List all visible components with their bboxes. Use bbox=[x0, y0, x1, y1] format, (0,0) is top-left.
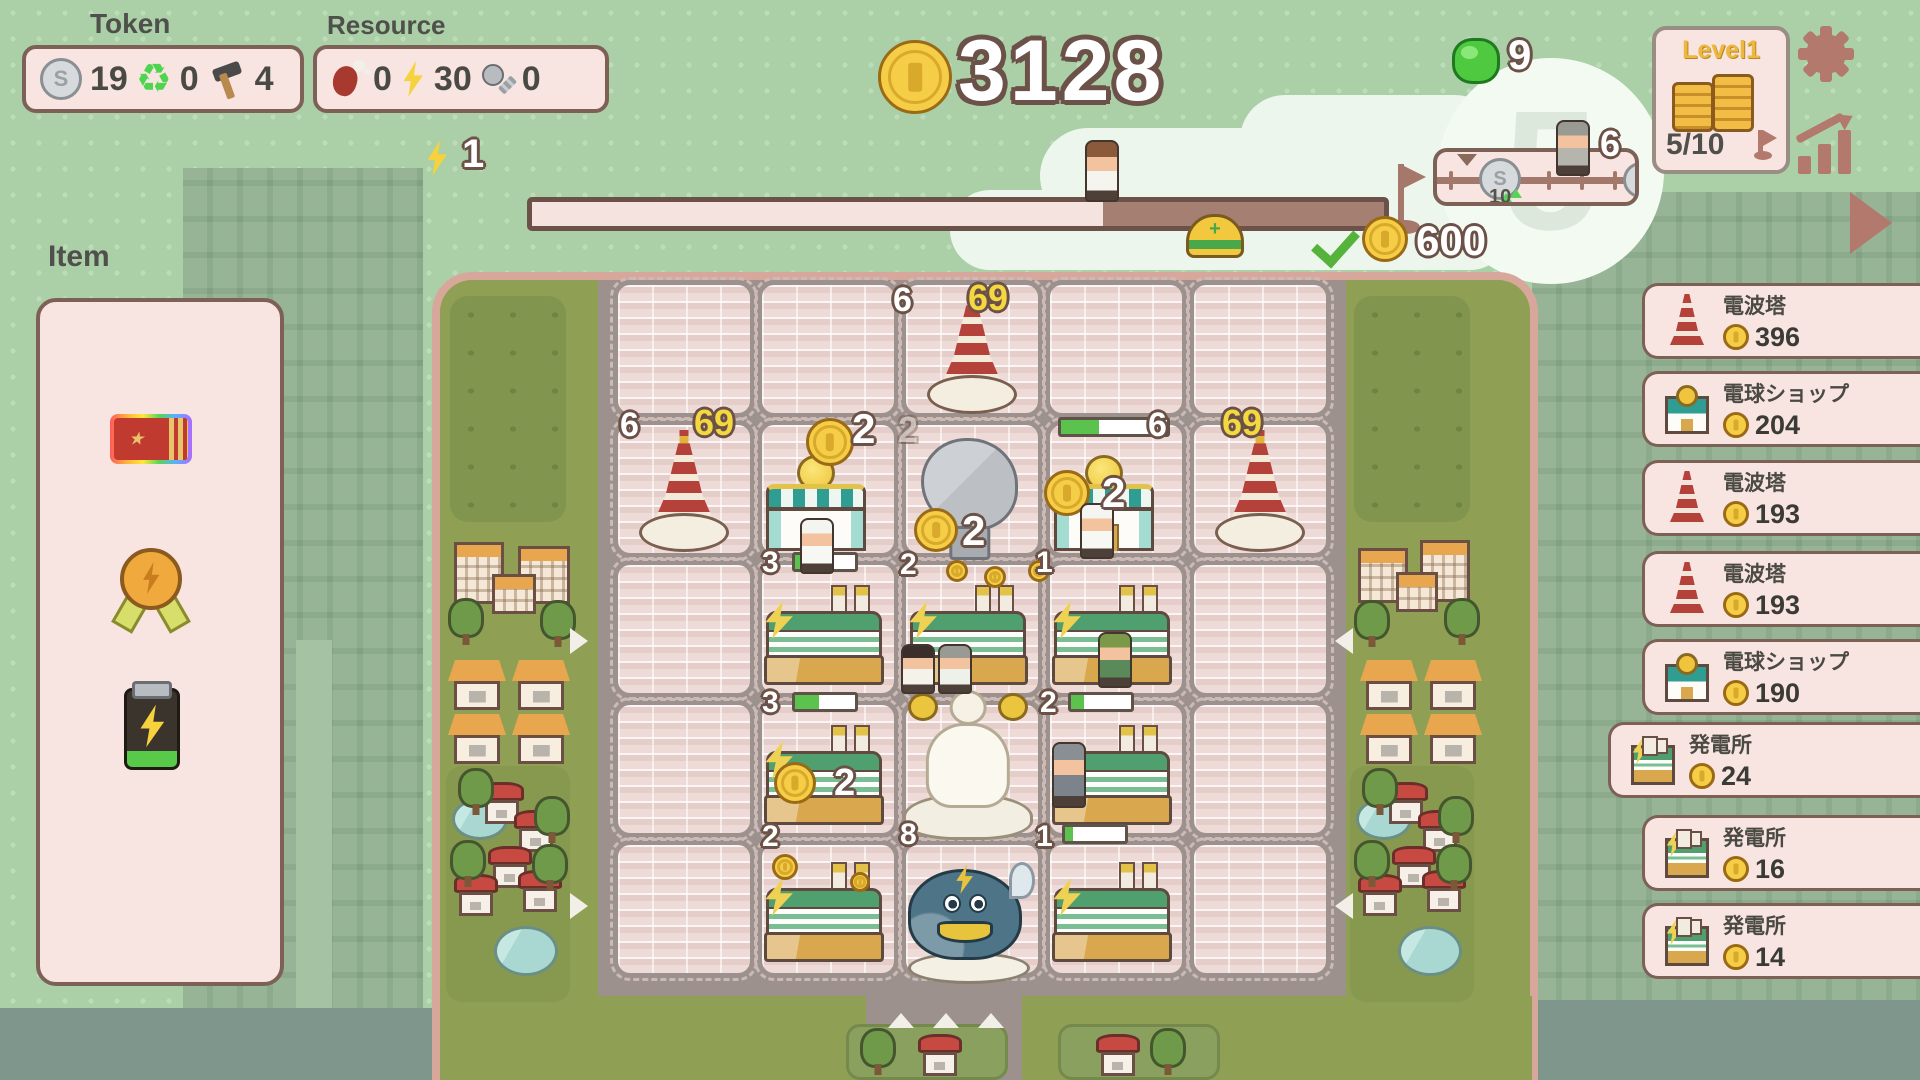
energy-battery-item[interactable] bbox=[124, 688, 180, 770]
flag-icon bbox=[1754, 130, 1780, 160]
shop-icon bbox=[1663, 382, 1711, 436]
meat-icon bbox=[331, 58, 365, 100]
sidebar-item-発電所-5[interactable]: 発電所24 bbox=[1608, 722, 1920, 798]
token-coin-value: 19 bbox=[90, 60, 128, 99]
street-band-right bbox=[1528, 1000, 1920, 1080]
board-arrow-left bbox=[1322, 893, 1353, 919]
board-arrow-right bbox=[570, 628, 601, 654]
house-o-decor bbox=[448, 660, 506, 710]
token-label: Token bbox=[90, 8, 170, 40]
tower-icon bbox=[1663, 471, 1711, 525]
energy-float-value: 1 bbox=[462, 134, 484, 174]
screw-icon bbox=[480, 62, 514, 96]
street-band-left bbox=[0, 1008, 445, 1080]
statue-building[interactable] bbox=[900, 682, 1036, 840]
reward-coin-icon bbox=[1362, 216, 1408, 262]
board-coin[interactable] bbox=[774, 762, 816, 804]
gem-count: 9 bbox=[1508, 34, 1531, 76]
resource-screw-value: 0 bbox=[522, 60, 541, 99]
pond-decor bbox=[1398, 926, 1462, 976]
building-name: 発電所 bbox=[1723, 910, 1786, 940]
board-cell[interactable] bbox=[618, 845, 750, 973]
whale-building[interactable] bbox=[903, 862, 1035, 984]
board-number-label: 3 bbox=[762, 688, 779, 718]
resource-energy-value: 30 bbox=[434, 60, 472, 99]
coin-total-icon bbox=[878, 40, 952, 114]
building-earning-value: 16 bbox=[1755, 854, 1785, 885]
board-cell[interactable] bbox=[618, 285, 750, 413]
board-number-label: 2 bbox=[762, 822, 779, 852]
pond-decor bbox=[494, 926, 558, 976]
plant-icon bbox=[1663, 914, 1711, 968]
building-earning: 24 bbox=[1689, 761, 1752, 792]
whale-part bbox=[943, 894, 961, 914]
tower-part bbox=[1215, 513, 1305, 552]
bldg-decor bbox=[1396, 572, 1438, 612]
board-arrow-right bbox=[570, 893, 601, 919]
plant-icon-shape bbox=[1665, 838, 1709, 878]
sidebar-item-text: 発電所24 bbox=[1689, 729, 1752, 792]
gold-coin-icon bbox=[1723, 324, 1749, 350]
board-number-label: 2 bbox=[962, 510, 985, 552]
building-earning: 396 bbox=[1723, 322, 1800, 353]
energy-medal-item[interactable] bbox=[112, 548, 190, 634]
building-earning: 14 bbox=[1723, 942, 1786, 973]
building-name: 電球ショップ bbox=[1723, 646, 1849, 676]
building-name: 発電所 bbox=[1723, 822, 1786, 852]
building-name: 電波塔 bbox=[1723, 558, 1800, 588]
building-earning: 16 bbox=[1723, 854, 1786, 885]
gold-coin-icon bbox=[1723, 680, 1749, 706]
board-arrow-up bbox=[933, 1000, 959, 1028]
villager-green-hat-sprite bbox=[1098, 632, 1132, 688]
tower-building[interactable] bbox=[639, 430, 729, 552]
board-coin[interactable] bbox=[946, 560, 968, 582]
villager-sprite bbox=[938, 644, 972, 694]
token-panel: S 19 ♻ 0 4 bbox=[22, 45, 304, 113]
board-number-label: 2 bbox=[834, 764, 855, 802]
board-number-label: 2 bbox=[1102, 472, 1125, 514]
board-number-label: 2 bbox=[898, 412, 918, 448]
tree-decor bbox=[458, 768, 494, 808]
build-progress-fill bbox=[1065, 827, 1073, 841]
tree-decor bbox=[534, 796, 570, 836]
city-silhouette-left-strip bbox=[296, 640, 332, 1010]
build-progress-bar bbox=[1062, 824, 1128, 844]
level-panel[interactable]: Level1 5/10 bbox=[1652, 26, 1790, 174]
park-decor bbox=[1354, 296, 1470, 522]
house-o-decor bbox=[1424, 714, 1482, 764]
house-o-decor bbox=[512, 660, 570, 710]
building-earning-value: 396 bbox=[1755, 322, 1800, 353]
tower-icon-shape bbox=[1667, 562, 1707, 616]
plant-part bbox=[1052, 932, 1173, 962]
building-name: 電波塔 bbox=[1723, 467, 1800, 497]
building-name: 発電所 bbox=[1689, 729, 1752, 759]
gold-coin-icon bbox=[1689, 763, 1715, 789]
board-number-label: 2 bbox=[852, 408, 875, 450]
bldg-decor bbox=[492, 574, 536, 614]
energy-float-icon bbox=[424, 140, 450, 176]
house-o-decor bbox=[1360, 714, 1418, 764]
tree-decor bbox=[1150, 1028, 1186, 1068]
settings-gear-icon[interactable] bbox=[1806, 34, 1846, 74]
build-progress-fill bbox=[1071, 695, 1084, 709]
shop-icon bbox=[1663, 650, 1711, 704]
tower-building[interactable] bbox=[1215, 430, 1305, 552]
board-number-label: 2 bbox=[900, 550, 917, 580]
track-line bbox=[1437, 177, 1635, 184]
rainbow-ticket-item[interactable] bbox=[110, 414, 192, 464]
board-number-label: 8 bbox=[900, 820, 917, 850]
villager-sprite bbox=[901, 644, 935, 694]
building-name: 電球ショップ bbox=[1723, 378, 1849, 408]
building-earning-value: 190 bbox=[1755, 678, 1800, 709]
board-coin[interactable] bbox=[850, 872, 870, 892]
plant-building[interactable] bbox=[1054, 862, 1170, 962]
board-number-label: 6 bbox=[893, 283, 912, 317]
build-progress-bar bbox=[792, 692, 858, 712]
board-cell[interactable] bbox=[1194, 285, 1326, 413]
gold-coin-icon bbox=[1723, 856, 1749, 882]
plant-part bbox=[764, 655, 885, 685]
board-number-label: 3 bbox=[762, 548, 779, 578]
house-r-decor bbox=[1358, 874, 1402, 916]
sidebar-item-text: 電波塔396 bbox=[1723, 290, 1800, 353]
build-progress-fill bbox=[795, 695, 819, 709]
quest-runner-sprite bbox=[1085, 140, 1119, 202]
whale-part bbox=[937, 921, 992, 943]
sidebar-item-text: 電波塔193 bbox=[1723, 467, 1800, 530]
plant-icon bbox=[1629, 733, 1677, 787]
tree-decor bbox=[1438, 796, 1474, 836]
track-next-coin: S bbox=[1623, 162, 1639, 198]
coin-total-value: 3128 bbox=[958, 28, 1165, 114]
building-earning-value: 193 bbox=[1755, 590, 1800, 621]
track-marker-value: 10 bbox=[1489, 186, 1511, 206]
token-hammer-value: 4 bbox=[255, 60, 274, 99]
sidebar-item-text: 発電所14 bbox=[1723, 910, 1786, 973]
shop-icon-shape bbox=[1665, 396, 1709, 434]
statue-part bbox=[950, 690, 987, 725]
board-number-label: 6 bbox=[1148, 408, 1167, 442]
walker-count: 6 bbox=[1600, 126, 1620, 162]
quest-progress-bar bbox=[527, 197, 1389, 231]
board-arrow-up bbox=[888, 1000, 914, 1028]
tower-icon-shape bbox=[1667, 294, 1707, 348]
board-cell[interactable] bbox=[762, 285, 894, 413]
building-earning-value: 14 bbox=[1755, 942, 1785, 973]
building-earning-value: 24 bbox=[1721, 761, 1751, 792]
item-panel bbox=[36, 298, 284, 986]
board-number-label: 69 bbox=[1222, 405, 1262, 441]
energy-icon bbox=[400, 61, 426, 97]
sidebar-item-電球ショップ-4[interactable]: 電球ショップ190 bbox=[1642, 639, 1920, 715]
board-number-label: 2 bbox=[1040, 688, 1057, 718]
tree-decor bbox=[1436, 844, 1472, 884]
quest-progress-fill bbox=[532, 202, 1103, 226]
level-progress: 5/10 bbox=[1666, 128, 1724, 162]
tower-icon bbox=[1663, 562, 1711, 616]
board-arrow-left bbox=[1322, 628, 1353, 654]
board-number-label: 1 bbox=[1036, 548, 1053, 578]
house-o-decor bbox=[448, 714, 506, 764]
chef-sprite bbox=[800, 518, 834, 574]
building-earning-value: 204 bbox=[1755, 410, 1800, 441]
whale-part bbox=[1009, 862, 1035, 899]
sidebar-item-text: 電波塔193 bbox=[1723, 558, 1800, 621]
hammer-icon bbox=[207, 59, 247, 99]
board-coin[interactable] bbox=[772, 854, 798, 880]
plant-part bbox=[766, 632, 882, 657]
board-cell[interactable] bbox=[1050, 285, 1182, 413]
tree-decor bbox=[1354, 600, 1390, 640]
house-o-decor bbox=[1424, 660, 1482, 710]
sidebar-item-電波塔-2[interactable]: 電波塔193 bbox=[1642, 460, 1920, 536]
sidebar-item-text: 発電所16 bbox=[1723, 822, 1786, 885]
building-earning: 193 bbox=[1723, 590, 1800, 621]
board-cell[interactable] bbox=[618, 705, 750, 833]
building-earning: 204 bbox=[1723, 410, 1849, 441]
resource-meat-value: 0 bbox=[373, 60, 392, 99]
tree-decor bbox=[1444, 598, 1480, 638]
shop-part bbox=[766, 484, 866, 510]
plant-building[interactable] bbox=[766, 585, 882, 685]
resource-panel: 0 30 0 bbox=[313, 45, 609, 113]
tower-icon-shape bbox=[1667, 471, 1707, 525]
gold-coin-icon bbox=[1723, 944, 1749, 970]
building-earning: 190 bbox=[1723, 678, 1849, 709]
coin-stack-icon bbox=[1672, 82, 1714, 132]
token-recycle-value: 0 bbox=[180, 60, 199, 99]
board-cell[interactable] bbox=[1194, 705, 1326, 833]
tower-part bbox=[1231, 443, 1289, 519]
tower-part bbox=[927, 375, 1017, 414]
house-o-decor bbox=[512, 714, 570, 764]
sidebar-item-text: 電球ショップ204 bbox=[1723, 378, 1849, 441]
build-progress-bar bbox=[1068, 692, 1134, 712]
tower-part bbox=[655, 443, 713, 519]
gold-coin-icon bbox=[1723, 412, 1749, 438]
resource-label: Resource bbox=[327, 10, 446, 41]
board-coin[interactable] bbox=[806, 418, 854, 466]
tree-decor bbox=[1354, 840, 1390, 880]
statue-part bbox=[908, 693, 938, 721]
sidebar-item-発電所-7[interactable]: 発電所14 bbox=[1642, 903, 1920, 979]
house-o-decor bbox=[1360, 660, 1418, 710]
game-stage: 5 6696696692222321322281 Token S 19 ♻ 0 … bbox=[0, 0, 1920, 1080]
gold-coin-icon bbox=[1723, 501, 1749, 527]
building-earning: 193 bbox=[1723, 499, 1800, 530]
walker-sprite bbox=[1556, 120, 1590, 176]
level-title: Level1 bbox=[1656, 36, 1786, 65]
plant-icon-shape bbox=[1631, 745, 1675, 785]
item-panel-label: Item bbox=[48, 240, 110, 274]
sidebar-item-電波塔-0[interactable]: 電波塔396 bbox=[1642, 283, 1920, 359]
board-number-label: 6 bbox=[620, 408, 639, 442]
gold-coin-icon bbox=[1723, 592, 1749, 618]
gem-icon bbox=[1452, 38, 1500, 84]
board-cell[interactable] bbox=[1194, 845, 1326, 973]
statue-part bbox=[998, 693, 1028, 721]
plant-part bbox=[766, 909, 882, 934]
tree-decor bbox=[532, 844, 568, 884]
plant-icon bbox=[1663, 826, 1711, 880]
board-cell[interactable] bbox=[618, 565, 750, 693]
house-r-decor bbox=[1096, 1034, 1140, 1076]
sidebar-item-発電所-6[interactable]: 発電所16 bbox=[1642, 815, 1920, 891]
building-earning-value: 193 bbox=[1755, 499, 1800, 530]
statue-part bbox=[926, 723, 1010, 808]
reward-value: 600 bbox=[1416, 220, 1486, 262]
sidebar-item-text: 電球ショップ190 bbox=[1723, 646, 1849, 709]
coin-stack-icon bbox=[1712, 74, 1754, 132]
board-number-label: 69 bbox=[694, 405, 734, 441]
plant-icon-shape bbox=[1665, 926, 1709, 966]
park-decor bbox=[450, 296, 566, 522]
play-next-button[interactable] bbox=[1850, 192, 1892, 254]
tree-decor bbox=[448, 598, 484, 638]
shop-icon-shape bbox=[1665, 664, 1709, 702]
board-coin[interactable] bbox=[914, 508, 958, 552]
plant-part bbox=[1054, 909, 1170, 934]
plant-part bbox=[764, 932, 885, 962]
building-name: 電波塔 bbox=[1723, 290, 1800, 320]
detective-sprite bbox=[1052, 742, 1086, 808]
stats-chart-icon[interactable] bbox=[1796, 108, 1860, 174]
silver-coin-icon: S bbox=[40, 58, 82, 100]
house-r-decor bbox=[918, 1034, 962, 1076]
house-r-decor bbox=[454, 874, 498, 916]
tower-icon bbox=[1663, 294, 1711, 348]
board-cell[interactable] bbox=[1194, 565, 1326, 693]
tree-decor bbox=[450, 840, 486, 880]
tree-decor bbox=[860, 1028, 896, 1068]
tower-part bbox=[639, 513, 729, 552]
track-pointer-icon bbox=[1457, 154, 1477, 176]
build-progress-fill bbox=[1061, 420, 1099, 434]
sidebar-item-電波塔-3[interactable]: 電波塔193 bbox=[1642, 551, 1920, 627]
board-number-label: 69 bbox=[968, 280, 1008, 316]
board-arrow-up bbox=[978, 1000, 1004, 1028]
board-number-label: 1 bbox=[1036, 822, 1053, 852]
recycle-icon: ♻ bbox=[136, 59, 172, 99]
board-coin[interactable] bbox=[984, 566, 1006, 588]
sidebar-item-電球ショップ-1[interactable]: 電球ショップ204 bbox=[1642, 371, 1920, 447]
tree-decor bbox=[1362, 768, 1398, 808]
